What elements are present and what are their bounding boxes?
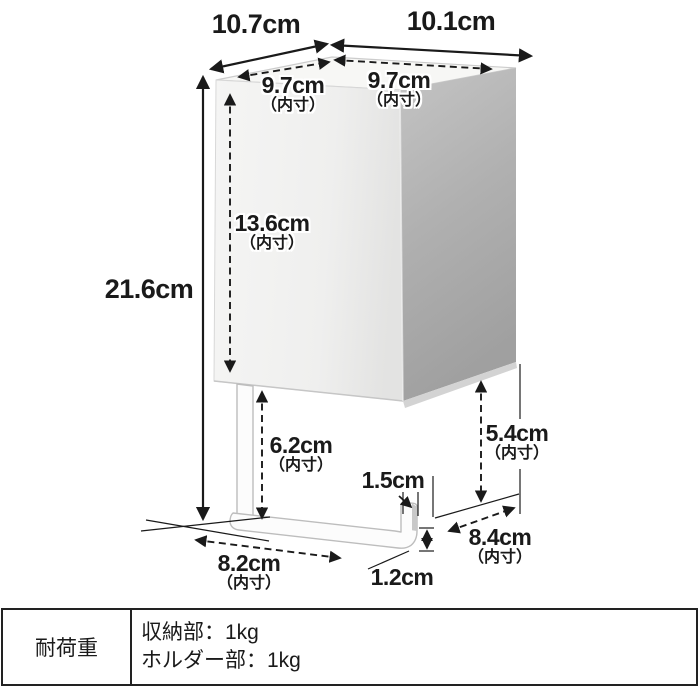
dim-hook-inner-height-left-note: （内寸） (269, 458, 333, 474)
dim-hook-inner-depth-value: 8.4cm (468, 526, 532, 549)
dim-hook-inner-height-right-note: （内寸） (485, 446, 549, 462)
dim-inner-depth-top-note: （内寸） (367, 93, 431, 109)
dim-inner-width-top-note: （内寸） (261, 98, 325, 114)
product-page: { "page": { "background": "#ffffff" }, "… (0, 0, 700, 700)
hook-support-bar (237, 384, 253, 516)
dim-hook-inner-width: 8.2cm （内寸） (217, 552, 281, 592)
dim-outer-width: 10.7cm (212, 11, 301, 38)
dim-hook-bar-thickness: 1.2cm (371, 566, 434, 589)
dim-outer-height-value: 21.6cm (105, 276, 194, 303)
dim-hook-inner-width-note: （内寸） (217, 576, 281, 592)
spec-table-row-holder: ホルダー部：1kg (141, 647, 696, 675)
spec-table: 耐荷重 収納部：1kg ホルダー部：1kg (1, 608, 698, 686)
dim-outer-depth-value: 10.1cm (407, 8, 496, 35)
dim-hook-inner-height-right: 5.4cm （内寸） (485, 422, 549, 462)
dim-inner-width-top-value: 9.7cm (261, 74, 325, 97)
spec-table-row-storage: 収納部：1kg (141, 619, 696, 647)
dim-hook-bar-thickness-value: 1.2cm (371, 566, 434, 589)
dim-inner-height-box: 13.6cm （内寸） (234, 212, 309, 252)
dim-outer-depth: 10.1cm (407, 8, 496, 35)
dim-inner-depth-top-value: 9.7cm (367, 69, 431, 92)
dim-hook-inner-depth-note: （内寸） (468, 550, 532, 566)
spec-table-value-cell: 収納部：1kg ホルダー部：1kg (132, 610, 696, 684)
dim-hook-lip-width-value: 1.5cm (362, 469, 425, 492)
dim-inner-height-box-note: （内寸） (234, 236, 309, 252)
ext-hook-depth-top (435, 494, 519, 518)
hook-bottom-bar (230, 502, 417, 548)
dim-hook-inner-height-right-value: 5.4cm (485, 422, 549, 445)
dim-hook-inner-width-value: 8.2cm (217, 552, 281, 575)
dim-inner-height-box-value: 13.6cm (234, 212, 309, 235)
dim-hook-inner-height-left: 6.2cm （内寸） (269, 434, 333, 474)
dim-hook-inner-depth: 8.4cm （内寸） (468, 526, 532, 566)
dim-outer-height: 21.6cm (105, 276, 194, 303)
dim-hook-inner-height-left-value: 6.2cm (269, 434, 333, 457)
box-side-face (400, 68, 516, 401)
spec-table-header-label: 耐荷重 (35, 632, 98, 662)
dim-inner-depth-top: 9.7cm （内寸） (367, 69, 431, 109)
spec-table-header-cell: 耐荷重 (3, 610, 132, 684)
arrow-outer-depth (332, 45, 531, 56)
dim-hook-lip-width: 1.5cm (362, 469, 425, 492)
dim-inner-width-top: 9.7cm （内寸） (261, 74, 325, 114)
hook-lip-side-shade (412, 503, 417, 531)
dim-outer-width-value: 10.7cm (212, 11, 301, 38)
